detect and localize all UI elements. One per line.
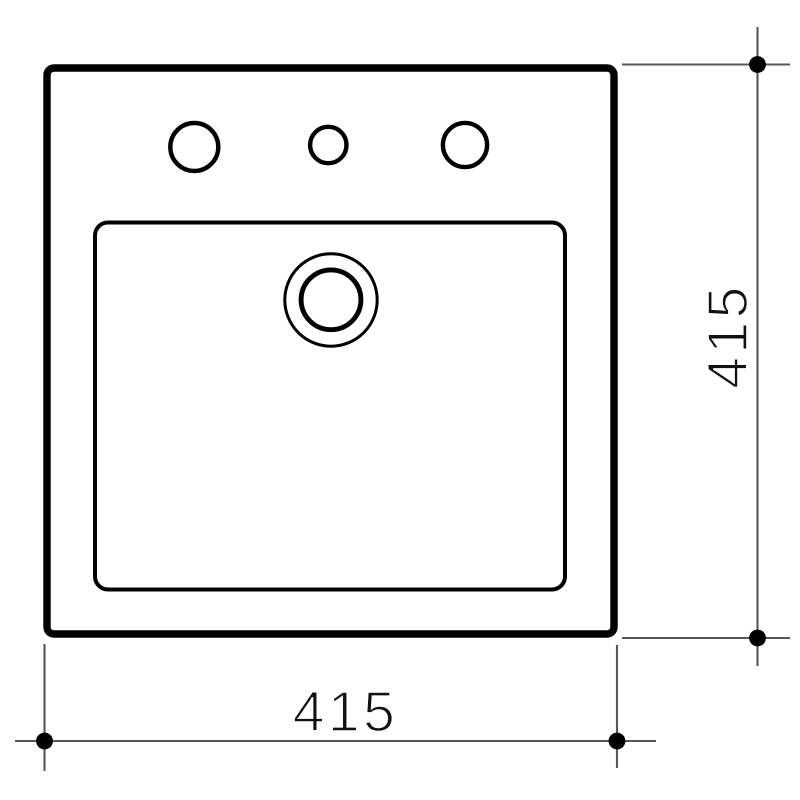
svg-text:415: 415	[293, 680, 399, 744]
svg-text:415: 415	[696, 283, 760, 389]
